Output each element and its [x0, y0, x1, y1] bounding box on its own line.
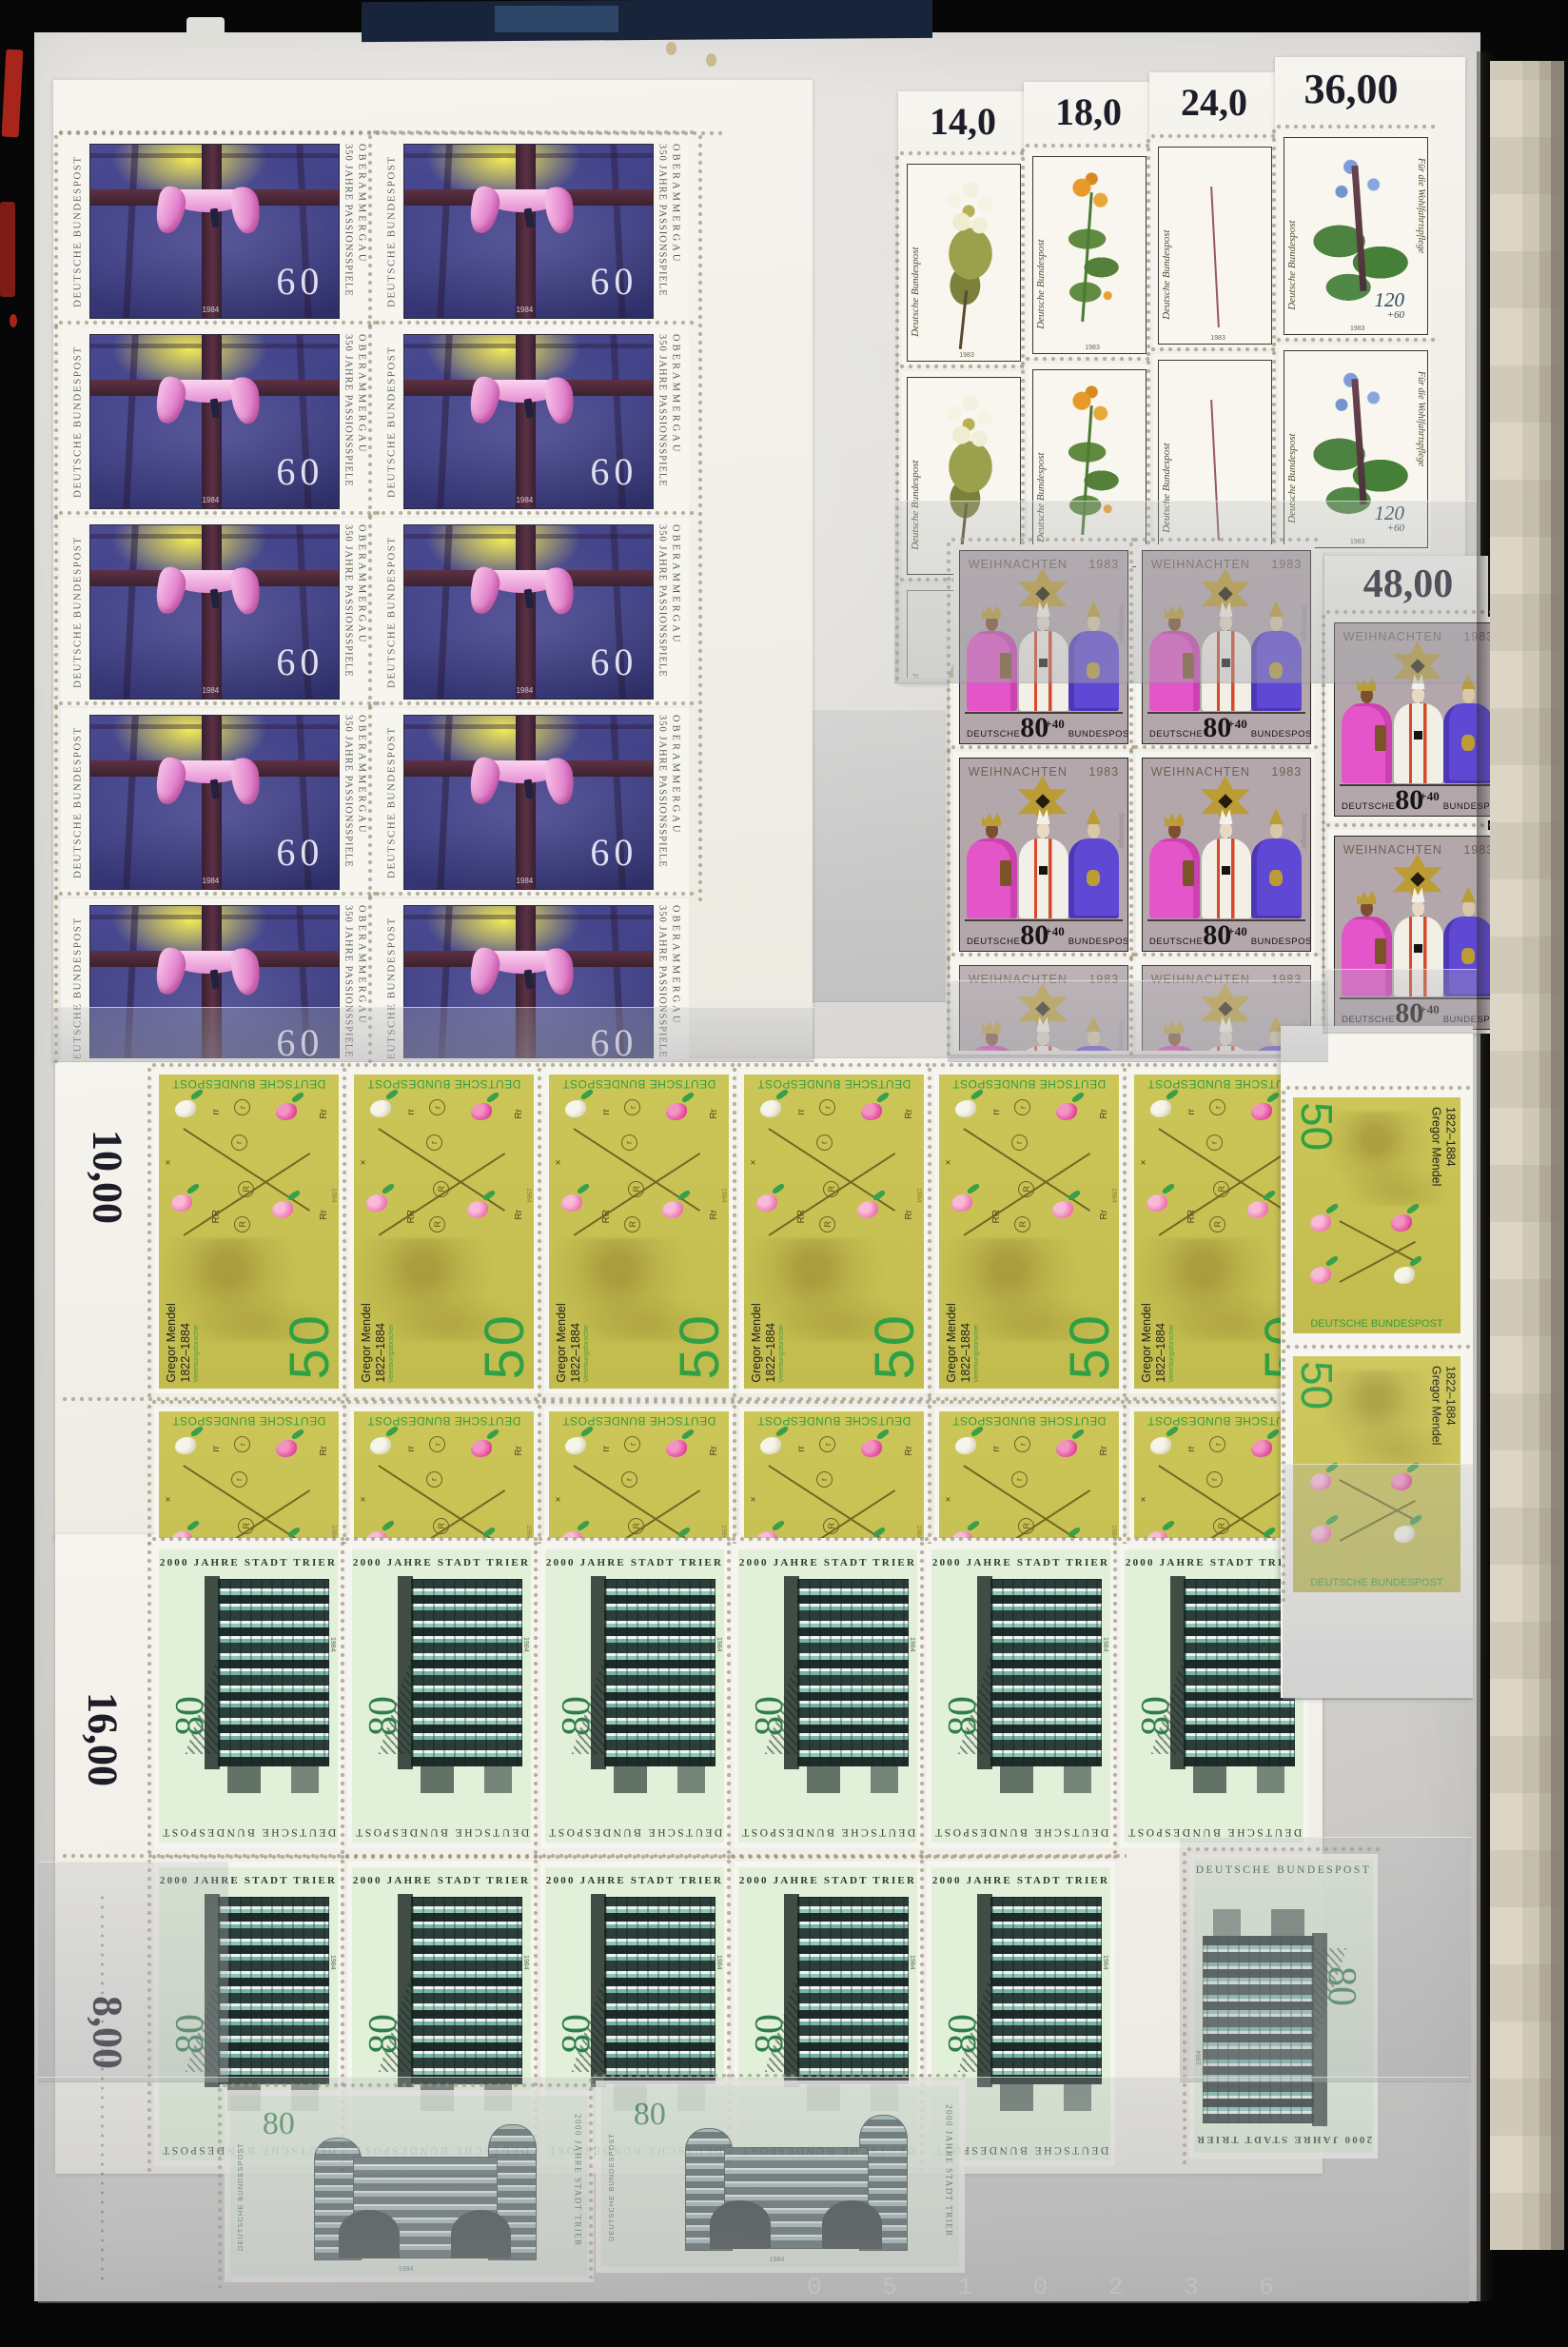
window-lattice [123, 716, 138, 889]
stamp-frame: WEIHNACHTEN 1983 DEUTSCHE 80+40 BUNDE [959, 758, 1128, 952]
gene-label: rr [796, 1446, 807, 1452]
gene-circle: r [816, 1134, 833, 1151]
stamp-value: 50 [676, 1312, 725, 1380]
stamp-issuer-text: DEUTSCHE BUNDESPOST [744, 1414, 924, 1428]
charity-side-text: Für die Wohlfahrtspflege [1416, 158, 1426, 315]
stamp-name-text: Gregor Mendel 1822–1884 Vererbungsforsch… [945, 1251, 980, 1383]
gold-pot [1461, 735, 1475, 751]
carol-singer-pink [1342, 683, 1392, 783]
perforation-dots [150, 1398, 349, 1406]
stamp-frame: Deutsche Bundespost 120+60 Für die Wohlf… [1032, 156, 1147, 354]
stamp-frame: DEUTSCHE BUNDESPOST r r R R rr Rr RR Rr … [159, 1075, 339, 1389]
sweet-pea-magenta [857, 1099, 886, 1122]
glassine-pocket [948, 980, 1328, 1062]
cross-symbol: × [748, 1493, 758, 1504]
stamp-weihnachten: WEIHNACHTEN 1983 DEUTSCHE 80+40 BUNDE [1136, 752, 1315, 956]
gene-circle: R [1209, 1216, 1225, 1233]
pocket-stitch-line [101, 1894, 104, 2284]
stamp-trier: 2000 JAHRE STADT TRIER 80 DEUTSCHE BUNDE… [734, 1544, 922, 1848]
stamp-issuer-text: DEUTSCHE BUNDESPOST [159, 1826, 338, 1838]
gene-label: Rr [709, 1109, 719, 1119]
stamp-issuer-text: DEUTSCHE BUNDESPOST [549, 1414, 729, 1428]
stamp-trier: 2000 JAHRE STADT TRIER 80 DEUTSCHE BUNDE… [154, 1544, 343, 1848]
stamp-weihnachten: WEIHNACHTEN 1983 DEUTSCHE 80+40 BUNDE [953, 752, 1132, 956]
stamp-artwork-window-cross: 60 1984 [403, 715, 654, 890]
perforation-dots [52, 704, 60, 902]
perforation-dots [893, 154, 901, 371]
stamp-name-text: Gregor Mendel 1822–1884 Vererbungsforsch… [1140, 1251, 1175, 1383]
perforation-dots [696, 133, 704, 906]
gene-circle: r [819, 1436, 835, 1452]
stamp-year: 1983 [1210, 335, 1225, 342]
stamp-mendel: DEUTSCHE BUNDESPOST r r R R rr Rr RR Rr … [544, 1070, 734, 1393]
perforation-dots [1149, 132, 1281, 140]
sweet-pea-magenta [1247, 1436, 1276, 1459]
porta-nigra-illustration [411, 1897, 522, 2084]
cone-hat [1266, 808, 1285, 824]
stamp-year: 1984 [715, 1955, 722, 1970]
sweet-pea-pink [853, 1197, 882, 1220]
cross-vertical-bar [516, 716, 536, 889]
cross-vertical-bar [516, 145, 536, 318]
sweet-pea-magenta [1052, 1436, 1081, 1459]
stamp-value: 50 [480, 1312, 530, 1380]
carol-singer-violet [1251, 818, 1302, 918]
gene-circle: R [238, 1181, 254, 1197]
gene-label: rr [991, 1446, 1002, 1452]
gene-circle: R [628, 1518, 644, 1534]
paper-speck [706, 53, 716, 67]
gene-circle: r [429, 1099, 445, 1115]
perforation-dots [537, 1853, 735, 1861]
star-diamond [1035, 794, 1050, 809]
sweet-pea-pink [463, 1197, 492, 1220]
gene-circle: r [1206, 1471, 1223, 1488]
stamp-year: 1984 [202, 686, 219, 695]
stamp-year: 1984 [1110, 1188, 1117, 1203]
star-diamond [1218, 794, 1233, 809]
gene-circle: R [1213, 1518, 1229, 1534]
window-lattice [437, 716, 452, 889]
album-page-edges [1490, 61, 1564, 2250]
sweet-pea-magenta [1052, 1099, 1081, 1122]
stamp-year: 1984 [329, 1637, 336, 1652]
stamp-year: 1984 [516, 877, 533, 885]
gene-circle: r [1011, 1471, 1028, 1488]
sweet-pea-pink [753, 1191, 781, 1213]
sweet-pea-white [1147, 1096, 1175, 1119]
stamp-issuer-text: DEUTSCHE BUNDESPOST [66, 715, 89, 890]
sweet-pea-white [951, 1433, 980, 1456]
stamp-title: 2000 JAHRE STADT TRIER [738, 1875, 917, 1886]
porta-nigra-illustration [218, 1579, 329, 1766]
window-lattice [123, 525, 138, 699]
stamp-series-text: 350 JAHRE PASSIONSSPIELE OBERAMMERGAU [654, 715, 684, 890]
sweet-pea-magenta [662, 1436, 691, 1459]
gene-label: RR [406, 1210, 417, 1223]
stamp-frame: DEUTSCHE BUNDESPOST r r R R rr Rr RR Rr … [744, 1075, 924, 1389]
gene-label: rr [601, 1109, 612, 1115]
window-lattice [437, 335, 452, 508]
perforation-dots [146, 1403, 153, 1544]
gene-label: Rr [904, 1109, 914, 1119]
album-cover-strip [362, 0, 932, 42]
album-spine-red-mark [0, 202, 15, 297]
stamp-value: 80 [361, 1696, 406, 1736]
stamp-year: 1984 [909, 1955, 915, 1970]
gene-label: RR [601, 1210, 612, 1223]
sweet-pea-white [1390, 1263, 1419, 1286]
stamp-title: 2000 JAHRE STADT TRIER [545, 1875, 724, 1886]
stamp-year: 1984 [720, 1188, 727, 1203]
gene-circle: R [628, 1181, 644, 1197]
carol-singer-white [1394, 683, 1444, 783]
flower-illustration [1177, 155, 1266, 331]
stamp-issuer-text: DEUTSCHE BUNDESPOST [66, 334, 89, 509]
sweet-pea-white [756, 1096, 785, 1119]
stamp-value: 80 [1133, 1696, 1179, 1736]
porta-nigra-illustration [604, 1897, 715, 2084]
perforation-dots [57, 128, 381, 136]
stamp-artwork-window-cross: 60 1984 [89, 524, 340, 700]
perforation-dots [52, 514, 60, 712]
album-spine-red-mark [10, 314, 17, 327]
stamp-title: 2000 JAHRE STADT TRIER [352, 1875, 531, 1886]
gene-label: RR [991, 1210, 1002, 1223]
stamp-value: 80 [361, 2014, 406, 2054]
stamp-value-row: DEUTSCHE 80+40 BUNDESPOST [1342, 789, 1496, 814]
gene-label: rr [406, 1446, 417, 1452]
perforation-dots [150, 1061, 349, 1069]
stamp-oberammergau: DEUTSCHE BUNDESPOST 60 1984 350 JAHRE PA… [61, 327, 375, 516]
perforation-dots [146, 1540, 153, 1854]
porta-nigra-illustration [1184, 1579, 1295, 1766]
stamp-issuer-text: DEUTSCHE BUNDESPOST [66, 524, 89, 700]
gene-label: rr [601, 1446, 612, 1452]
gene-label: Rr [514, 1210, 524, 1220]
stamp-value: 60 [276, 640, 323, 684]
cross-symbol: × [943, 1493, 953, 1504]
stamp-issuer-text: DEUTSCHE BUNDESPOST [380, 524, 403, 700]
sweet-pea-white [171, 1433, 200, 1456]
gene-label: Rr [1099, 1210, 1109, 1220]
porta-nigra-illustration [218, 1897, 329, 2084]
carol-singer-pink [967, 818, 1017, 918]
stamp-title: WEIHNACHTEN 1983 [969, 765, 1119, 779]
stamp-frame: 2000 JAHRE STADT TRIER 80 DEUTSCHE BUNDE… [738, 1549, 917, 1843]
stamp-frame: 2000 JAHRE STADT TRIER 80 DEUTSCHE BUNDE… [931, 1549, 1110, 1843]
stamp-year: 1984 [1110, 1525, 1117, 1540]
sweet-pea-white [366, 1096, 395, 1119]
stamp-name-text: Gregor Mendel 1822–1884 [1429, 1107, 1457, 1272]
stamp-issuer-text: DEUTSCHE BUNDESPOST [66, 144, 89, 319]
sweet-pea-pink [363, 1191, 391, 1213]
perforation-dots [61, 1395, 1279, 1403]
sweet-pea-magenta [467, 1099, 496, 1122]
belt [1414, 731, 1423, 740]
gene-circle: r [1206, 1134, 1223, 1151]
album-cover-highlight [495, 6, 618, 32]
stamp-frame: 2000 JAHRE STADT TRIER 80 DEUTSCHE BUNDE… [1125, 1549, 1303, 1843]
stamp-issuer-text: DEUTSCHE BUNDESPOST [380, 334, 403, 509]
stamp-artwork-window-cross: 60 1984 [403, 144, 654, 319]
gift [1375, 725, 1386, 751]
stamp-mendel-pair: 50 Gregor Mendel 1822–1884 DEUTSCHE BUND… [1288, 1093, 1465, 1338]
stamp-title: WEIHNACHTEN 1983 [1343, 843, 1494, 857]
belt [1414, 944, 1423, 953]
sweet-pea-pink [1306, 1211, 1335, 1233]
stamp-trier: 2000 JAHRE STADT TRIER 80 DEUTSCHE BUNDE… [540, 1544, 729, 1848]
page-mount-notch [186, 17, 225, 48]
gift [1375, 938, 1386, 964]
perforation-dots [945, 748, 952, 961]
perforation-dots [52, 133, 60, 331]
sweet-pea-magenta [272, 1099, 301, 1122]
gene-label: Rr [514, 1446, 524, 1456]
gene-label: Rr [709, 1210, 719, 1220]
gene-label: rr [406, 1109, 417, 1115]
cone-hat [1459, 886, 1478, 902]
stamp-issuer-text: Deutsche Bundespost [1035, 172, 1047, 329]
stamp-trier: 2000 JAHRE STADT TRIER 80 DEUTSCHE BUNDE… [927, 1544, 1115, 1848]
stamp-year: 1984 [720, 1525, 727, 1540]
crown [1357, 890, 1376, 904]
porta-nigra-illustration [990, 1579, 1102, 1766]
stamp-year: 1984 [915, 1188, 922, 1203]
sweet-pea-white [561, 1096, 590, 1119]
gene-circle: R [823, 1181, 839, 1197]
stamp-series-text: 350 JAHRE PASSIONSSPIELE OBERAMMERGAU [654, 334, 684, 509]
stamp-frame: 50 Gregor Mendel 1822–1884 DEUTSCHE BUND… [1293, 1097, 1460, 1333]
glassine-pocket [894, 501, 1477, 683]
perforation-dots [540, 1398, 739, 1406]
carol-singer-pink [1149, 818, 1200, 918]
stamp-value: 60 [276, 259, 323, 304]
sweet-pea-white [171, 1096, 200, 1119]
porta-nigra-illustration [797, 1897, 909, 2084]
stamp-issuer-text: DEUTSCHE BUNDESPOST [380, 715, 403, 890]
stamp-frame: 2000 JAHRE STADT TRIER 80 DEUTSCHE BUNDE… [545, 1549, 724, 1843]
crown [982, 812, 1001, 826]
sweet-pea-white [366, 1433, 395, 1456]
stamp-year: 1984 [522, 1955, 529, 1970]
gene-circle: r [621, 1471, 637, 1488]
stamp-year: 1984 [525, 1188, 532, 1203]
sweet-pea-pink [1049, 1197, 1077, 1220]
gene-label: Rr [1099, 1109, 1109, 1119]
stamp-series-text: 350 JAHRE PASSIONSSPIELE OBERAMMERGAU [340, 144, 370, 319]
stamp-oberammergau: DEUTSCHE BUNDESPOST 60 1984 350 JAHRE PA… [375, 708, 689, 897]
stamp-artwork-window-cross: 60 1984 [89, 334, 340, 509]
sweet-pea-white [951, 1096, 980, 1119]
gene-circle: R [234, 1216, 250, 1233]
stamp-mendel: DEUTSCHE BUNDESPOST r r R R rr Rr RR Rr … [154, 1070, 343, 1393]
stamp-year: 1983 [959, 352, 974, 359]
cross-vertical-bar [516, 525, 536, 699]
stamp-wohlfahrt-flower: Deutsche Bundespost 120+60 Für die Wohlf… [1153, 141, 1275, 348]
stamp-mendel: DEUTSCHE BUNDESPOST r r R R rr Rr RR Rr … [349, 1070, 539, 1393]
stamp-value: 80 [747, 1696, 793, 1736]
carol-singer-white [1019, 818, 1069, 918]
footer-digits: 0 5 1 0 2 3 6 [807, 2273, 1297, 2301]
sweet-pea-magenta [1247, 1099, 1276, 1122]
stamp-name-text: Gregor Mendel 1822–1884 Vererbungsforsch… [360, 1251, 395, 1383]
perforation-dots [150, 1853, 348, 1861]
gene-circle: r [231, 1134, 247, 1151]
perforation-dots [1024, 142, 1155, 149]
glassine-pocket [1323, 969, 1477, 1034]
cross-symbol: × [553, 1156, 563, 1167]
stamp-year: 1984 [715, 1637, 722, 1652]
perforation-dots [343, 1853, 541, 1861]
window-lattice [123, 335, 138, 508]
glassine-pocket [1180, 1837, 1471, 2082]
sweet-pea-white [1147, 1433, 1175, 1456]
stamp-name-text: Gregor Mendel 1822–1884 Vererbungsforsch… [750, 1251, 785, 1383]
stamp-title: 2000 JAHRE STADT TRIER [159, 1557, 338, 1568]
gold-pot [1269, 870, 1283, 886]
stamp-year: 1984 [915, 1525, 922, 1540]
stamp-title: 2000 JAHRE STADT TRIER [545, 1557, 724, 1568]
stamp-side-text: Sternsinger [1117, 813, 1126, 849]
sweet-pea-white [756, 1433, 785, 1456]
stamp-issuer-text: DEUTSCHE BUNDESPOST [738, 1826, 917, 1838]
stamp-value: 120+60 [1375, 288, 1405, 321]
gold-pot [1087, 870, 1100, 886]
gene-circle: r [234, 1099, 250, 1115]
stamp-issuer-text: DEUTSCHE BUNDESPOST [354, 1414, 534, 1428]
gene-label: rr [991, 1109, 1002, 1115]
stamp-value-row: DEUTSCHE 80+40 BUNDESPOST [967, 717, 1121, 741]
gene-circle: r [426, 1134, 442, 1151]
perforation-dots [923, 1853, 1121, 1861]
gene-circle: r [1209, 1099, 1225, 1115]
stamp-issuer-text: Deutsche Bundespost [1161, 163, 1172, 320]
stamp-name-text: Gregor Mendel 1822–1884 Vererbungsforsch… [165, 1251, 200, 1383]
stamp-oberammergau: DEUTSCHE BUNDESPOST 60 1984 350 JAHRE PA… [61, 518, 375, 706]
glassine-pocket [1283, 1464, 1473, 1700]
stamp-wohlfahrt-flower: Deutsche Bundespost 120+60 Für die Wohlf… [1028, 150, 1149, 358]
stamp-issuer-text: Deutsche Bundespost [910, 180, 921, 337]
gene-circle: r [1011, 1134, 1028, 1151]
stamp-value: 60 [590, 449, 637, 494]
stamp-year: 1983 [1085, 345, 1100, 351]
gene-circle: r [231, 1471, 247, 1488]
stamp-issuer-text: Deutsche Bundespost [1286, 153, 1298, 310]
sweet-pea-pink [558, 1191, 586, 1213]
stamp-series-text: 350 JAHRE PASSIONSSPIELE OBERAMMERGAU [340, 715, 370, 890]
star-diamond [1410, 872, 1425, 887]
gene-circle: r [624, 1436, 640, 1452]
stamp-frame: DEUTSCHE BUNDESPOST r r R R rr Rr RR Rr … [549, 1075, 729, 1389]
stamp-title: 2000 JAHRE STADT TRIER [931, 1557, 1110, 1568]
perforation-dots [52, 324, 60, 522]
flower-illustration [1051, 165, 1141, 341]
perforation-dots [371, 128, 695, 136]
glassine-pocket [38, 2077, 1469, 2303]
carol-singer-white [1202, 818, 1252, 918]
sweet-pea-magenta [272, 1436, 301, 1459]
stamp-issuer-text: DEUTSCHE BUNDESPOST [159, 1414, 339, 1428]
stamp-mendel: DEUTSCHE BUNDESPOST r r R R rr Rr RR Rr … [739, 1070, 929, 1393]
gene-label: Rr [904, 1446, 914, 1456]
gene-circle: r [1014, 1436, 1030, 1452]
stamp-value: 60 [276, 830, 323, 875]
stamp-issuer-text: DEUTSCHE BUNDESPOST [549, 1077, 729, 1091]
stamp-value-row: DEUTSCHE 80+40 BUNDESPOST [1149, 924, 1303, 949]
stamp-frame: 2000 JAHRE STADT TRIER 80 DEUTSCHE BUNDE… [159, 1549, 338, 1843]
gene-label: Rr [319, 1210, 329, 1220]
belt [1039, 866, 1049, 875]
stamp-frame: Deutsche Bundespost 120+60 Für die Wohlf… [907, 164, 1021, 362]
gene-circle: R [1018, 1518, 1034, 1534]
stamp-issuer-text: DEUTSCHE BUNDESPOST [380, 144, 403, 319]
stamp-mendel: DEUTSCHE BUNDESPOST r r R R rr Rr RR Rr … [934, 1070, 1124, 1393]
stamp-artwork-window-cross: 60 1984 [403, 524, 654, 700]
gene-label: Rr [319, 1446, 329, 1456]
stamp-year: 1984 [202, 306, 219, 314]
stamp-value: 60 [276, 449, 323, 494]
perforation-dots [345, 1398, 544, 1406]
sweet-pea-pink [1244, 1197, 1272, 1220]
gene-circle: R [433, 1181, 449, 1197]
sweet-pea-pink [167, 1191, 196, 1213]
cross-vertical-bar [516, 335, 536, 508]
stamp-frame: 2000 JAHRE STADT TRIER 80 DEUTSCHE BUNDE… [352, 1549, 531, 1843]
stamp-year: 1984 [1102, 1955, 1108, 1970]
stamp-value: 50 [285, 1312, 335, 1380]
carol-singer-violet [1068, 818, 1119, 918]
gene-label: RR [1186, 1210, 1197, 1223]
stamp-artwork-window-cross: 60 1984 [89, 715, 340, 890]
cross-symbol: × [748, 1156, 758, 1167]
window-lattice [123, 145, 138, 318]
gene-circle: R [429, 1216, 445, 1233]
gene-circle: R [1014, 1216, 1030, 1233]
stamp-year: 1984 [202, 496, 219, 504]
perforation-dots [1275, 123, 1437, 130]
gene-label: rr [1186, 1446, 1197, 1452]
stamp-value: 60 [590, 259, 637, 304]
gene-label: RR [211, 1210, 222, 1223]
stamp-frame: DEUTSCHE BUNDESPOST r r R R rr Rr RR Rr … [354, 1075, 534, 1389]
stamp-year: 1984 [202, 877, 219, 885]
gene-circle: r [819, 1099, 835, 1115]
gene-circle: R [624, 1216, 640, 1233]
stamp-artwork-window-cross: 60 1984 [89, 144, 340, 319]
stamp-wohlfahrt-flower: Deutsche Bundespost 120+60 Für die Wohlf… [902, 158, 1024, 365]
sweet-pea-pink [1306, 1263, 1335, 1286]
stamp-issuer-text: DEUTSCHE BUNDESPOST [354, 1077, 534, 1091]
stamp-value: 80 [940, 2014, 986, 2054]
gene-circle: r [1209, 1436, 1225, 1452]
stamp-issuer-text: DEUTSCHE BUNDESPOST [939, 1414, 1119, 1428]
stamp-title: WEIHNACHTEN 1983 [1151, 765, 1302, 779]
stamp-value: 60 [590, 830, 637, 875]
stamp-value: 80 [167, 1696, 213, 1736]
stamp-title: 2000 JAHRE STADT TRIER [738, 1557, 917, 1568]
gene-label: Rr [514, 1109, 524, 1119]
stamp-issuer-text: DEUTSCHE BUNDESPOST [1293, 1318, 1460, 1330]
gene-circle: R [1018, 1181, 1034, 1197]
gene-circle: R [823, 1518, 839, 1534]
gene-circle: R [238, 1518, 254, 1534]
sweet-pea-magenta [662, 1099, 691, 1122]
stamp-side-text: Sternsinger [1300, 813, 1308, 849]
gene-circle: R [433, 1518, 449, 1534]
porta-nigra-illustration [411, 1579, 522, 1766]
stamp-wohlfahrt-flower: Deutsche Bundespost 120+60 Für die Wohlf… [1279, 131, 1431, 339]
